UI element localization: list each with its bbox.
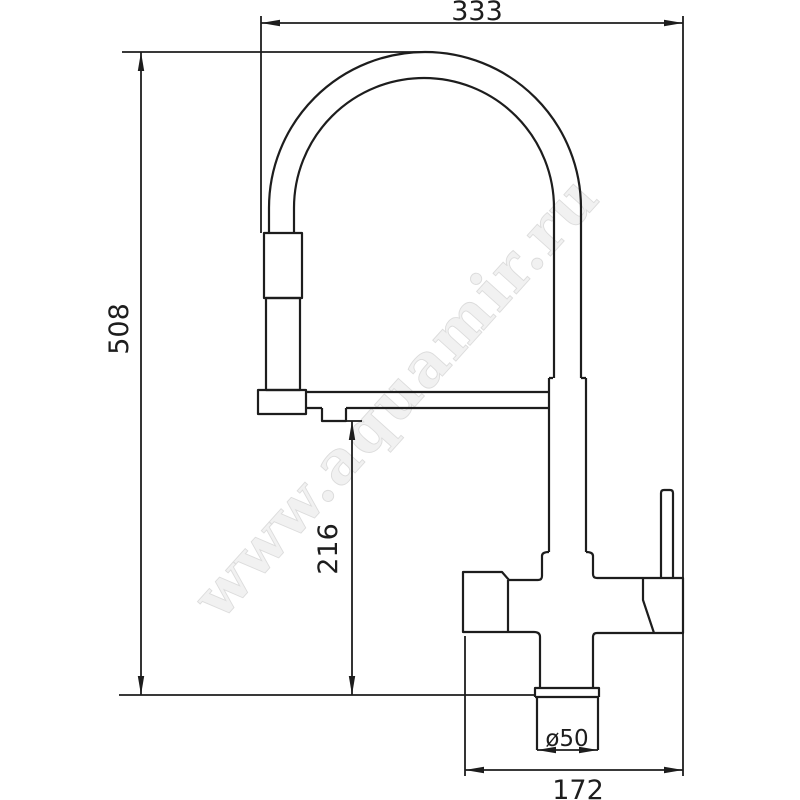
base-flange	[535, 688, 599, 697]
body-left-arm	[463, 552, 549, 688]
spray-head-lower	[266, 298, 300, 390]
faucet-dimension-drawing: www.aquamir.ru 333	[0, 0, 800, 800]
technical-drawing-page: www.aquamir.ru 333	[0, 0, 800, 800]
dim-overall-height-label: 508	[104, 303, 135, 355]
body-right-arm	[586, 552, 683, 688]
arrowhead-right	[664, 767, 683, 773]
arrowhead-bottom	[138, 676, 144, 695]
spray-head-upper	[264, 233, 302, 298]
body-right-arm-divider	[643, 578, 654, 633]
dim-overall-width-label: 333	[451, 0, 503, 27]
dim-base-span-label: 172	[552, 775, 604, 800]
spray-head-nozzle	[258, 390, 306, 414]
handle-lever	[661, 490, 673, 578]
arrowhead-left	[261, 20, 280, 26]
dim-spout-height-label: 216	[313, 523, 344, 575]
riser-collar	[549, 378, 586, 552]
arrowhead-left	[465, 767, 484, 773]
arrowhead-right	[664, 20, 683, 26]
dimension-base-diameter: ø50	[537, 726, 598, 753]
dimension-base-span: 172	[465, 636, 683, 800]
arrowhead-top	[138, 52, 144, 71]
faucet-outline	[258, 52, 683, 750]
dimension-overall-width: 333	[261, 0, 683, 776]
dim-base-diameter-label: ø50	[545, 726, 588, 752]
arrowhead-bottom	[349, 676, 355, 695]
